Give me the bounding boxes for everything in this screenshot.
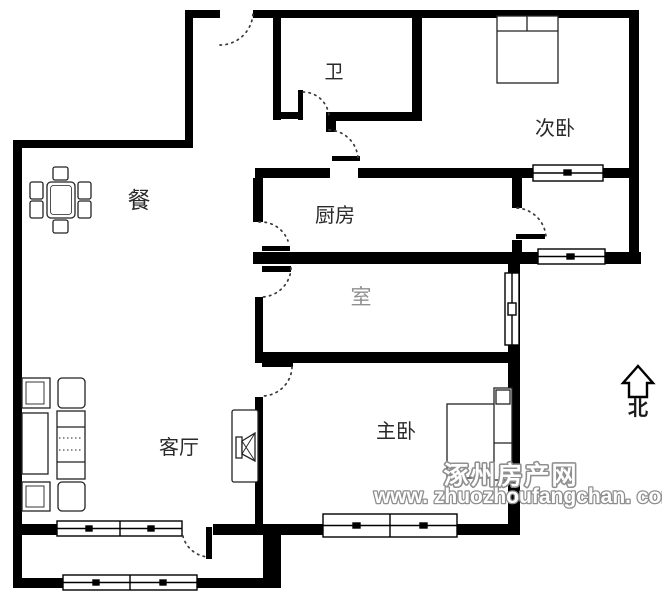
side-table (58, 378, 85, 408)
dining-chair (53, 220, 68, 233)
watermark-site-url: www. zhuozhoufangchan. com (373, 485, 662, 508)
wall (328, 112, 420, 121)
floorplan-drawing: 卫 次卧 餐 厨房 室 客厅 主卧 北 涿州房产网 www. zhuozhouf… (0, 0, 662, 600)
room-label-middle-room: 室 (351, 286, 372, 309)
dining-table-set (30, 167, 91, 233)
door-arc-entry (220, 12, 253, 45)
door-arc-balcony (182, 530, 209, 557)
dining-table-inner (51, 186, 72, 215)
window-secondary-bedroom (533, 165, 603, 181)
window-living-room (57, 521, 182, 536)
window-middle-room-east (505, 273, 519, 345)
door-panel-master-bedroom (262, 361, 293, 367)
wall (255, 168, 330, 178)
sofa-back-table (22, 413, 48, 474)
tv-stand (232, 410, 258, 482)
wall (629, 10, 639, 263)
wall (512, 168, 522, 208)
dining-chair (78, 201, 91, 218)
windows (57, 165, 605, 590)
north-label: 北 (628, 397, 648, 420)
dining-chair (30, 182, 43, 199)
bed-secondary (497, 16, 558, 83)
door-arc-east-balcony (517, 208, 546, 237)
wall (412, 13, 422, 121)
door-arc-kitchen-west (259, 222, 288, 241)
window-east-balcony (538, 249, 605, 264)
wall (273, 13, 281, 120)
north-arrow-icon (623, 366, 653, 397)
door-arc-master-bedroom (262, 367, 292, 396)
door-panel-kitchen-west (262, 246, 290, 251)
door-panel-middle-room (262, 266, 291, 272)
room-label-secondary-bedroom: 次卧 (535, 117, 575, 140)
dining-chair (53, 167, 68, 180)
wall (253, 10, 637, 18)
wall (253, 178, 263, 222)
door-panel-east-balcony (516, 234, 545, 239)
door-panel-bathroom (298, 90, 303, 120)
wall (255, 352, 513, 363)
wall (13, 140, 22, 588)
armchair-inner (26, 486, 44, 507)
dining-chair (78, 182, 91, 199)
side-table (58, 482, 85, 511)
armchair-inner (26, 382, 44, 404)
floorplan: 卫 次卧 餐 厨房 室 客厅 主卧 北 涿州房产网 www. zhuozhouf… (0, 0, 662, 600)
wall (15, 140, 193, 148)
compass: 北 (623, 366, 653, 420)
door-arc-middle-room (261, 268, 291, 297)
door-arc-kitchen-north (329, 130, 358, 159)
window-balcony (63, 575, 197, 590)
door-panel-balcony (206, 527, 212, 559)
room-label-bathroom: 卫 (324, 62, 343, 83)
room-label-master-bedroom: 主卧 (376, 420, 416, 443)
wall (512, 240, 522, 264)
door-panel-kitchen-north (332, 156, 360, 161)
room-label-living-room: 客厅 (159, 436, 199, 459)
watermark: 涿州房产网 www. zhuozhoufangchan. com (373, 461, 662, 508)
sofa (57, 411, 85, 479)
door-arc-bathroom (303, 92, 329, 118)
room-label-kitchen: 厨房 (315, 204, 355, 227)
wall (185, 10, 193, 147)
window-master-bedroom (323, 514, 457, 537)
dining-chair (30, 201, 43, 218)
room-label-dining: 餐 (128, 187, 151, 213)
wall (255, 297, 263, 354)
sofa-group (22, 378, 85, 511)
